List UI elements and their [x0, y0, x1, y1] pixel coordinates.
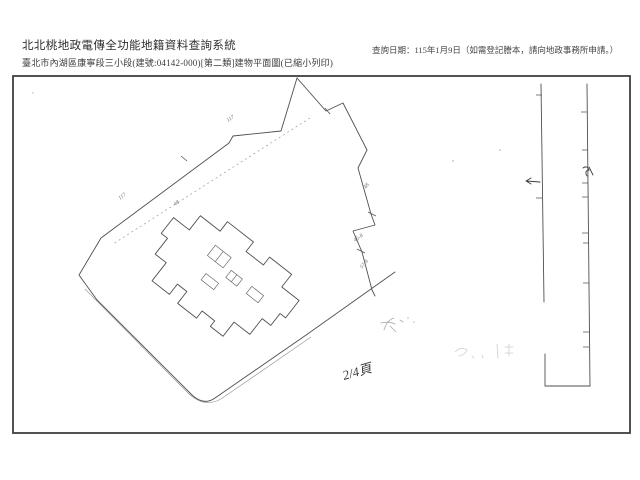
interior-room-4: [201, 273, 219, 289]
lot-number-label: 48: [362, 181, 371, 190]
road-strip-group: [526, 84, 593, 386]
drawing-frame: [13, 76, 630, 433]
arrow-mark: [526, 178, 540, 184]
interior-room-3: [246, 286, 263, 302]
road-strip-right-line: [587, 84, 590, 386]
scan-speck: [499, 149, 501, 151]
ink-dot: [413, 321, 415, 323]
handwritten-scribble-1: [381, 318, 403, 332]
ink-dot: [407, 317, 409, 319]
interior-partition-lines: [212, 251, 243, 281]
building-footprint-group: [134, 194, 311, 361]
parcel-boundary-west: [79, 78, 395, 401]
boundary-tick-marks: [181, 108, 376, 253]
scan-speck: [452, 160, 454, 162]
page-number-annotation: 2/4頁: [341, 360, 376, 383]
road-strip-left-line: [541, 84, 544, 302]
street-edge-dashed-line: [113, 118, 310, 244]
lot-number-label: 117: [226, 114, 236, 123]
floor-plan-drawing: 117 117 48 48 45-8 57-4 2/4頁: [0, 0, 640, 480]
road-strip-bottom: [545, 354, 590, 386]
handwritten-scribble-2: [455, 344, 513, 358]
road-strip-ticks: [536, 95, 589, 347]
building-outline: [134, 194, 311, 361]
street-curb-line: [85, 289, 311, 403]
lot-number-label: 117: [118, 192, 128, 202]
lot-number-label: 57-4: [358, 258, 370, 270]
scan-speck: [32, 92, 34, 94]
lot-number-label: 48: [172, 199, 181, 208]
